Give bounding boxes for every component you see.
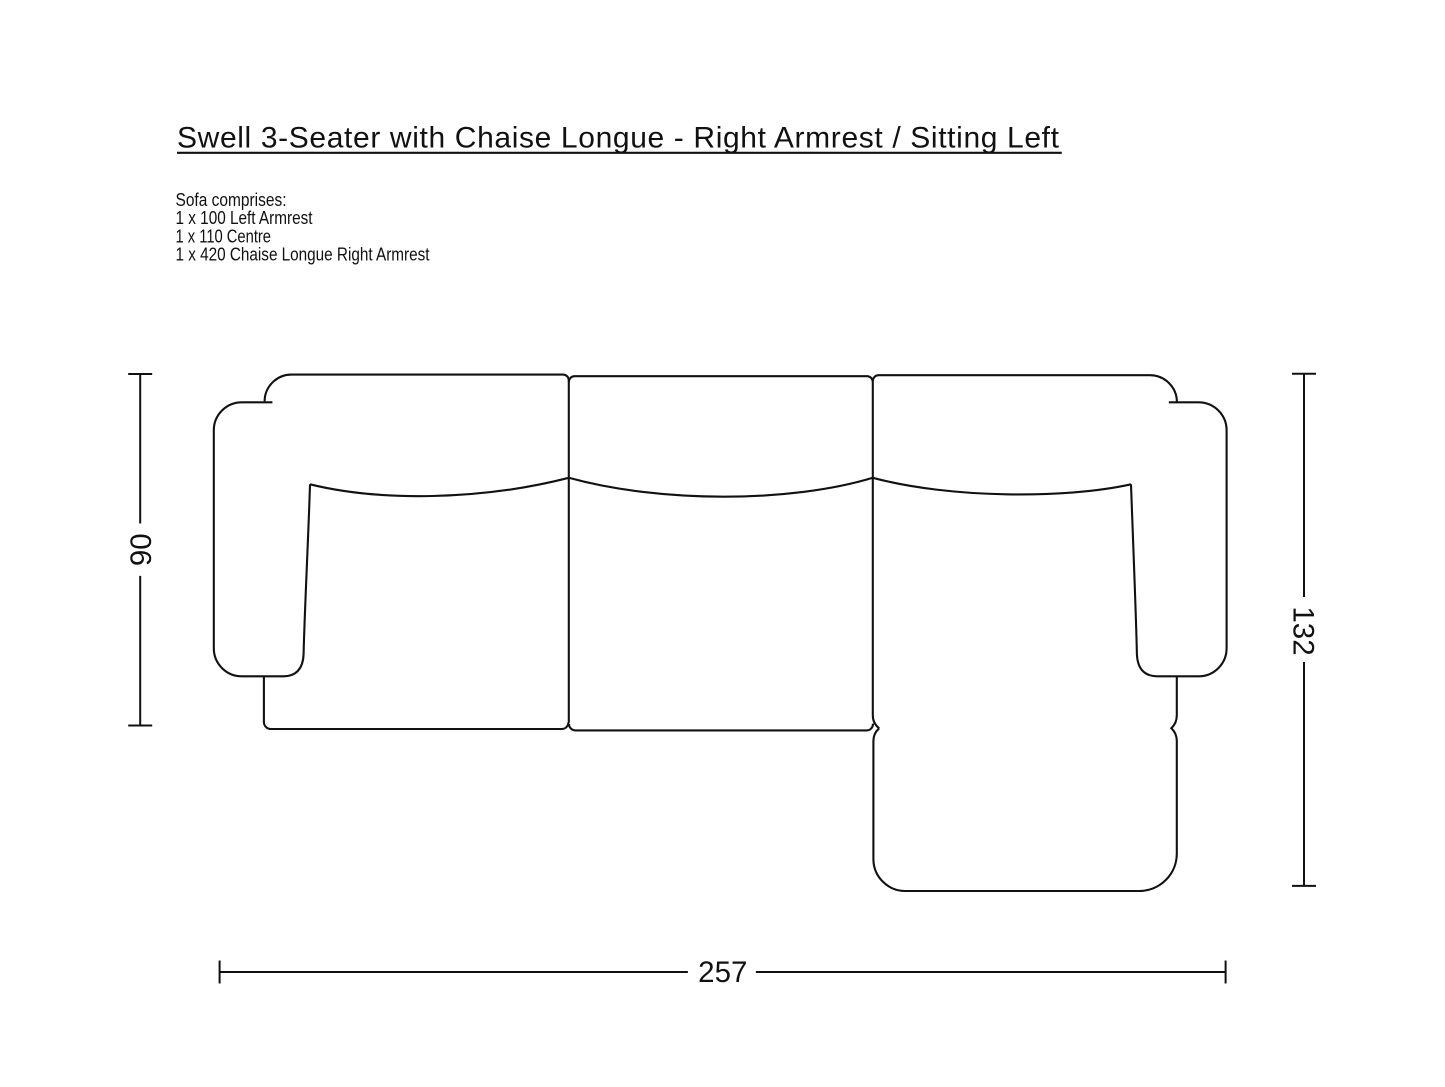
svg-text:132: 132 xyxy=(1286,606,1319,655)
svg-text:1 x 420 Chaise Longue Right Ar: 1 x 420 Chaise Longue Right Armrest xyxy=(176,244,430,265)
svg-text:90: 90 xyxy=(125,533,158,566)
svg-text:257: 257 xyxy=(698,956,747,989)
svg-text:Swell 3-Seater with Chaise Lon: Swell 3-Seater with Chaise Longue - Righ… xyxy=(177,122,1060,155)
